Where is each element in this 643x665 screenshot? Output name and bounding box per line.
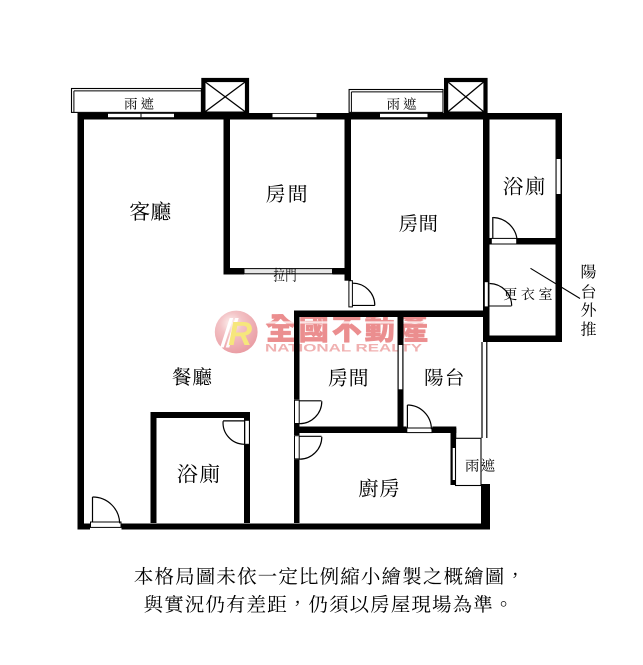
svg-text:R: R xyxy=(228,315,252,352)
